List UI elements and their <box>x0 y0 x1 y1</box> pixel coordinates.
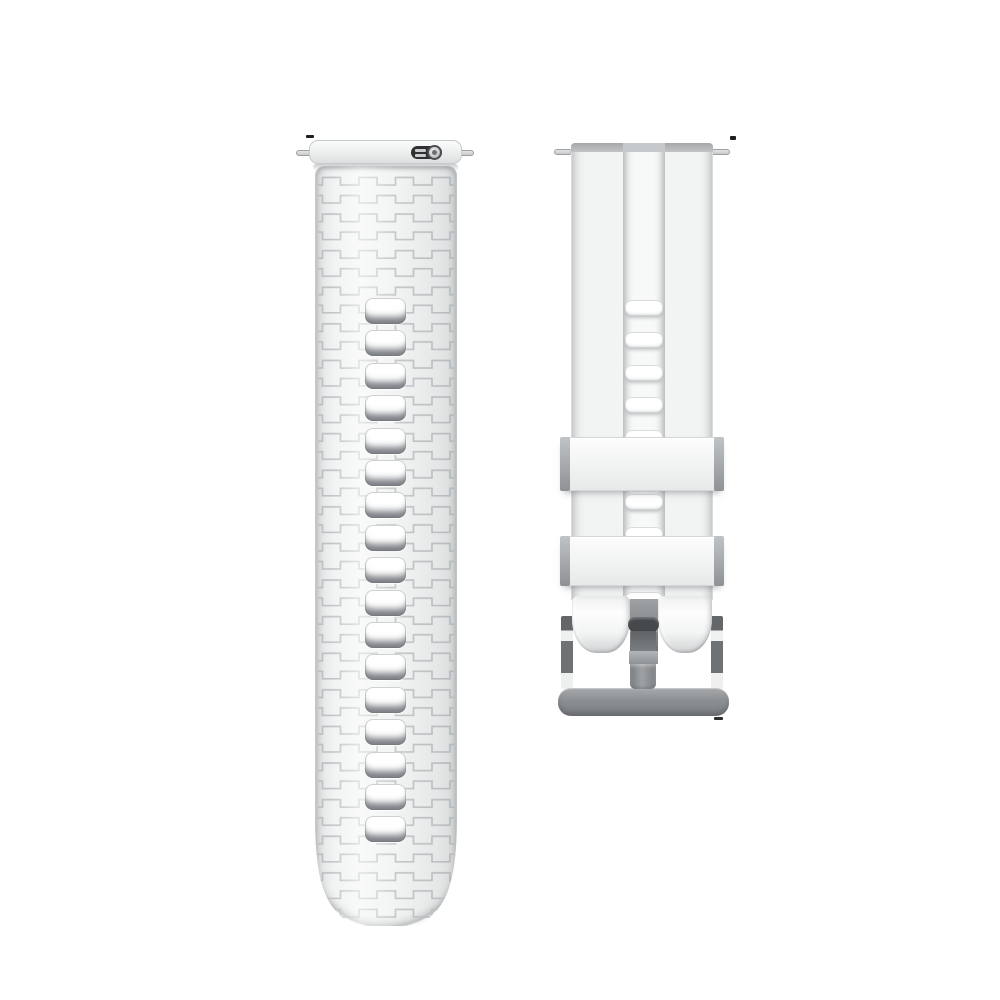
crop-mark <box>714 717 723 720</box>
strap-hole <box>625 365 663 381</box>
left-strap-holes <box>315 166 457 928</box>
strap-hole <box>365 557 406 583</box>
strap-hole <box>365 330 406 356</box>
strap-fold-left <box>572 596 630 653</box>
lever-slot <box>415 154 426 157</box>
strap-hole <box>365 687 406 713</box>
crop-mark <box>730 136 736 140</box>
strap-hole <box>365 816 406 842</box>
strap-fold-right <box>658 596 712 653</box>
right-strap-holes <box>623 143 665 600</box>
buckle-frame-right-post <box>711 616 723 689</box>
buckle-bottom-bar <box>558 688 729 716</box>
lever-slot <box>415 149 426 152</box>
buckle-tongue-upper <box>631 631 656 652</box>
strap-hole <box>625 300 663 316</box>
spring-bar-shadow <box>313 164 458 171</box>
strap-hole <box>365 752 406 778</box>
buckle-slot <box>628 617 659 632</box>
strap-hole <box>625 397 663 413</box>
strap-hole <box>365 590 406 616</box>
strap-hole <box>365 428 406 454</box>
keeper-loop-2 <box>560 536 724 586</box>
strap-hole <box>365 784 406 810</box>
spring-bar-pin-right <box>711 149 730 155</box>
strap-hole <box>365 298 406 324</box>
buckle-bar <box>629 651 658 664</box>
left-strap-body <box>315 166 457 928</box>
strap-hole <box>365 492 406 518</box>
spring-bar-pin-left <box>554 149 572 155</box>
strap-hole <box>365 719 406 745</box>
keeper-loop-1 <box>560 437 724 491</box>
strap-hole <box>365 622 406 648</box>
crop-mark <box>306 135 314 138</box>
strap-hole <box>365 460 406 486</box>
buckle-frame-left-post <box>561 616 573 689</box>
strap-hole <box>365 363 406 389</box>
buckle-tongue-lower <box>630 664 656 689</box>
strap-hole <box>365 654 406 680</box>
strap-hole <box>365 525 406 551</box>
strap-hole <box>365 395 406 421</box>
strap-hole <box>625 494 663 510</box>
strap-hole <box>625 332 663 348</box>
quick-release-knob <box>427 145 442 160</box>
product-photo <box>0 0 1000 1000</box>
